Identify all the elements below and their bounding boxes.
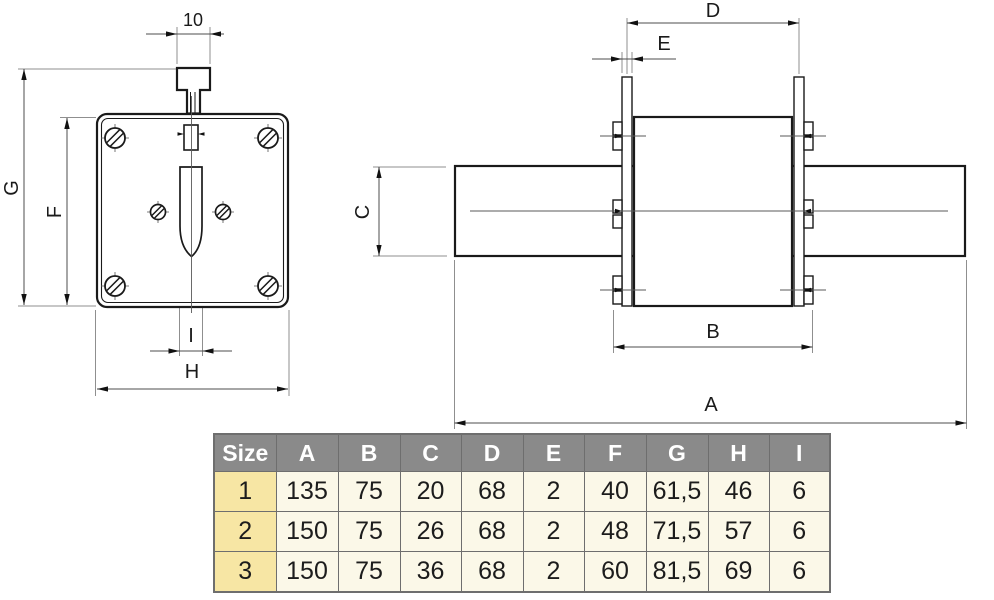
value-cell: 69 — [708, 552, 769, 593]
dim-label-G: G — [1, 180, 23, 196]
technical-drawing: 10 G F I H — [0, 0, 994, 432]
dim-label-10: 10 — [183, 10, 203, 30]
dim-label-A: A — [704, 394, 718, 416]
value-cell: 68 — [461, 512, 523, 552]
dim-label-I: I — [188, 325, 194, 347]
value-cell: 36 — [400, 552, 461, 593]
value-cell: 68 — [461, 472, 523, 512]
value-cell: 150 — [276, 512, 338, 552]
dim-label-E: E — [657, 33, 670, 55]
fuse-body — [634, 117, 792, 306]
value-cell: 20 — [400, 472, 461, 512]
indicator-strip-left — [622, 77, 632, 306]
dim-label-B: B — [706, 321, 719, 343]
value-cell: 48 — [584, 512, 646, 552]
value-cell: 75 — [338, 512, 400, 552]
table-row: 1 135 75 20 68 2 40 61,5 46 6 — [214, 472, 830, 512]
dim-label-D: D — [706, 0, 720, 22]
value-cell: 75 — [338, 552, 400, 593]
header-cell: D — [461, 434, 523, 472]
value-cell: 61,5 — [646, 472, 708, 512]
value-cell: 2 — [523, 552, 584, 593]
header-cell: H — [708, 434, 769, 472]
value-cell: 75 — [338, 472, 400, 512]
value-cell: 60 — [584, 552, 646, 593]
value-cell: 150 — [276, 552, 338, 593]
fuse-blade-front — [180, 167, 202, 257]
side-view: D E C B A — [352, 0, 967, 429]
size-cell: 3 — [214, 552, 276, 593]
dim-label-C: C — [352, 205, 374, 219]
table-header-row: Size A B C D E F G H I — [214, 434, 830, 472]
front-view: 10 G F I H — [1, 10, 289, 396]
value-cell: 46 — [708, 472, 769, 512]
dimension-table: Size A B C D E F G H I 1 135 75 20 68 2 … — [213, 433, 831, 593]
header-cell: E — [523, 434, 584, 472]
value-cell: 6 — [769, 552, 830, 593]
indicator-strip-right — [794, 77, 804, 306]
fuse-dimension-sheet: 10 G F I H — [0, 0, 994, 600]
size-cell: 2 — [214, 512, 276, 552]
dim-label-H: H — [185, 361, 199, 383]
value-cell: 2 — [523, 472, 584, 512]
top-indicator — [184, 125, 198, 150]
table-row: 2 150 75 26 68 2 48 71,5 57 6 — [214, 512, 830, 552]
size-cell: 1 — [214, 472, 276, 512]
value-cell: 6 — [769, 472, 830, 512]
value-cell: 26 — [400, 512, 461, 552]
value-cell: 6 — [769, 512, 830, 552]
value-cell: 40 — [584, 472, 646, 512]
table-row: 3 150 75 36 68 2 60 81,5 69 6 — [214, 552, 830, 593]
value-cell: 68 — [461, 552, 523, 593]
value-cell: 71,5 — [646, 512, 708, 552]
value-cell: 135 — [276, 472, 338, 512]
value-cell: 2 — [523, 512, 584, 552]
header-cell: A — [276, 434, 338, 472]
dim-label-F: F — [44, 206, 66, 218]
top-blade-tab — [177, 68, 210, 114]
header-cell: I — [769, 434, 830, 472]
header-cell: G — [646, 434, 708, 472]
value-cell: 57 — [708, 512, 769, 552]
header-cell-size: Size — [214, 434, 276, 472]
value-cell: 81,5 — [646, 552, 708, 593]
header-cell: F — [584, 434, 646, 472]
header-cell: B — [338, 434, 400, 472]
header-cell: C — [400, 434, 461, 472]
